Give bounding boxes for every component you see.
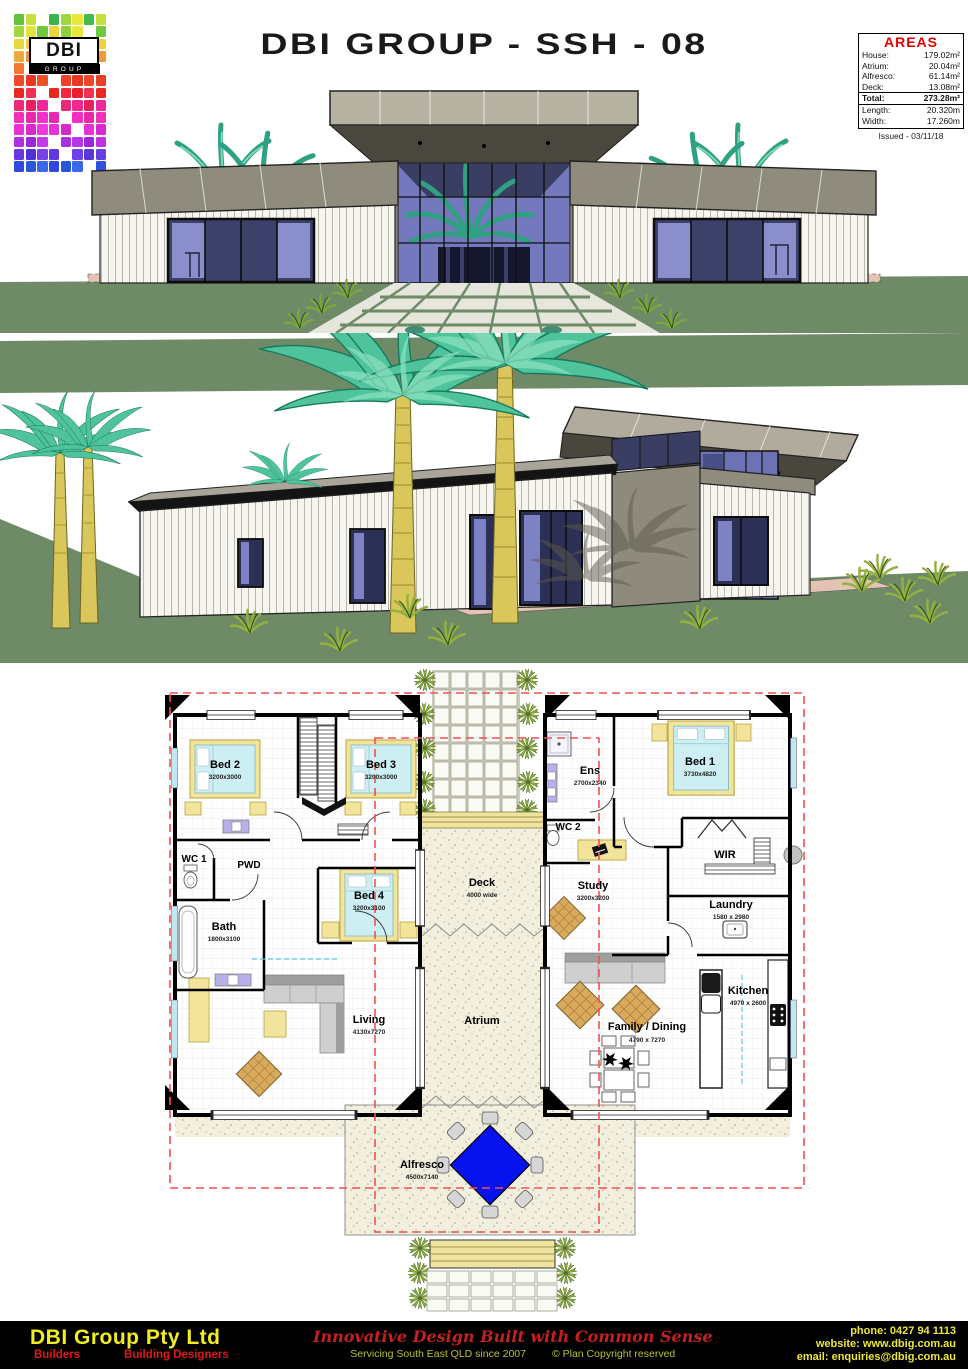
right-wing-elevation <box>570 161 876 283</box>
footer-website[interactable]: website: www.dbig.com.au <box>797 1338 956 1351</box>
room-dims-kitchen: 4970 x 2600 <box>730 1000 767 1007</box>
footer-servicing: Servicing South East QLD since 2007 <box>350 1348 526 1360</box>
floor-plan: Bed 2 3200x3000 Bed 3 3200x3000 WC 1 PWD… <box>152 668 816 1316</box>
room-label-wc2: WC 2 <box>556 822 581 833</box>
room-label-deck: Deck <box>469 877 496 889</box>
room-label-kitchen: Kitchen <box>728 985 769 997</box>
footer-tagline: Innovative Design Built with Common Sens… <box>313 1328 713 1346</box>
room-label-bed4: Bed 4 <box>354 890 385 902</box>
plan-sheet: DBI GROUP DBI GROUP - SSH - 08 AREAS Hou… <box>0 0 968 1369</box>
room-dims-family: 4790 x 7270 <box>629 1037 666 1044</box>
room-label-pwd: PWD <box>237 860 260 871</box>
left-wing-elevation <box>92 161 398 283</box>
room-dims-alfresco: 4500x7140 <box>406 1174 439 1181</box>
room-label-study: Study <box>578 880 609 892</box>
footer-bar: DBI Group Pty Ltd Builders Building Desi… <box>0 1321 968 1369</box>
room-dims-deck: 4000 wide <box>467 892 498 899</box>
room-label-laundry: Laundry <box>709 899 753 911</box>
footer-role-builders: Builders <box>34 1349 80 1361</box>
room-label-bed1: Bed 1 <box>685 756 715 768</box>
room-label-family: Family / Dining <box>608 1021 686 1033</box>
entry-courtyard-pavers <box>413 669 539 821</box>
room-label-atrium: Atrium <box>464 1015 500 1027</box>
room-label-bed3: Bed 3 <box>366 759 396 771</box>
logo-group-text: GROUP <box>29 64 100 74</box>
room-dims-bed2: 3200x3000 <box>209 774 242 781</box>
room-dims-bed3: 3200x3000 <box>365 774 398 781</box>
areas-row-house: House:179.02m² <box>859 50 963 61</box>
footer-email[interactable]: email: enquiries@dbig.com.au <box>797 1351 956 1364</box>
atrium-roof <box>330 91 638 163</box>
areas-title: AREAS <box>859 35 963 50</box>
footer-copyright: © Plan Copyright reserved <box>552 1348 675 1360</box>
room-dims-bath: 1800x3100 <box>208 936 241 943</box>
logo-dbi-text: DBI <box>29 37 99 65</box>
footer-company: DBI Group Pty Ltd <box>30 1327 229 1348</box>
room-label-bath: Bath <box>212 921 237 933</box>
room-dims-laundry: 1580 x 2980 <box>713 914 750 921</box>
room-dims-bed4: 3200x3100 <box>353 905 386 912</box>
footer-role-designers: Building Designers <box>124 1349 229 1361</box>
areas-row-atrium: Atrium:20.04m² <box>859 61 963 72</box>
room-dims-study: 3200x3200 <box>577 895 610 902</box>
room-label-alfresco: Alfresco <box>400 1159 444 1171</box>
room-dims-ens: 2700x2340 <box>574 780 607 787</box>
room-dims-bed1: 3730x4820 <box>684 771 717 778</box>
atrium-glass-tower <box>396 163 572 283</box>
footer-company-block: DBI Group Pty Ltd Builders Building Desi… <box>30 1327 229 1361</box>
areas-row-alfresco: Alfresco:61.14m² <box>859 71 963 82</box>
room-label-wc1: WC 1 <box>182 854 207 865</box>
footer-contact-block: phone: 0427 94 1113 website: www.dbig.co… <box>797 1325 956 1364</box>
room-label-living: Living <box>353 1014 385 1026</box>
page-title: DBI GROUP - SSH - 08 <box>0 28 968 62</box>
room-label-ens: Ens <box>580 765 600 777</box>
room-dims-living: 4130x7270 <box>353 1029 386 1036</box>
deck-step <box>420 812 545 828</box>
render-perspective-view <box>0 333 968 663</box>
footer-tagline-block: Innovative Design Built with Common Sens… <box>313 1328 713 1360</box>
room-label-bed2: Bed 2 <box>210 759 240 771</box>
room-label-wir: WIR <box>714 849 735 861</box>
footer-phone: phone: 0427 94 1113 <box>797 1325 956 1338</box>
render-front-elevation <box>0 85 968 333</box>
